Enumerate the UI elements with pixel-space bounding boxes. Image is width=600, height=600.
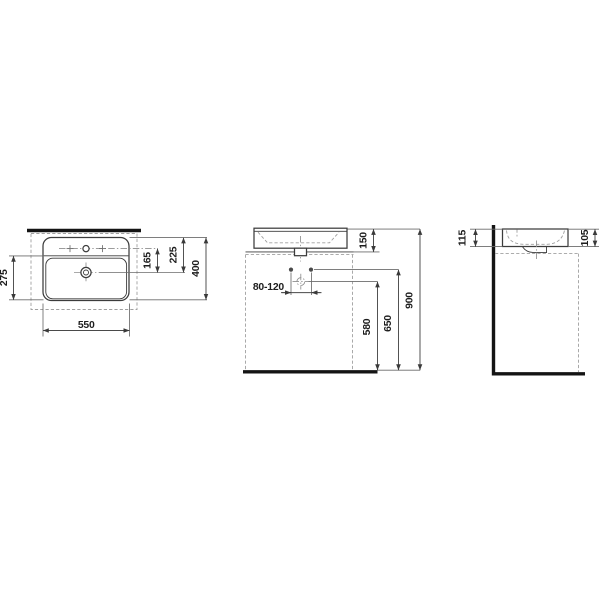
dim-label-650: 650 — [383, 315, 394, 332]
basin-side-outline — [503, 229, 569, 247]
washbasin-installation-diagram: 275 550 165 225 400 — [0, 0, 600, 600]
drain-fitting — [295, 248, 307, 256]
dim-label-550: 550 — [78, 320, 95, 331]
dim-label-275: 275 — [0, 269, 10, 286]
supply-connection-left — [289, 268, 293, 272]
dim-label-580: 580 — [362, 318, 373, 335]
dim-label-105: 105 — [580, 229, 591, 246]
dim-label-80-120: 80-120 — [253, 282, 285, 293]
top-view: 275 550 165 225 400 — [0, 231, 207, 337]
dim-label-165: 165 — [143, 252, 154, 269]
dim-label-900: 900 — [404, 292, 415, 309]
drain-symbol — [81, 267, 91, 277]
side-view: 115 105 — [458, 225, 600, 376]
dim-label-400: 400 — [191, 260, 202, 277]
taphole-symbol — [83, 246, 89, 252]
drain-fitting — [523, 247, 547, 253]
dim-label-150: 150 — [359, 232, 370, 249]
dim-label-115: 115 — [458, 230, 469, 247]
supply-connection-right — [309, 268, 313, 272]
technical-drawing: 275 550 165 225 400 — [0, 0, 600, 600]
front-view: 150 80-120 580 650 900 — [243, 228, 420, 372]
dim-label-225: 225 — [169, 246, 180, 263]
